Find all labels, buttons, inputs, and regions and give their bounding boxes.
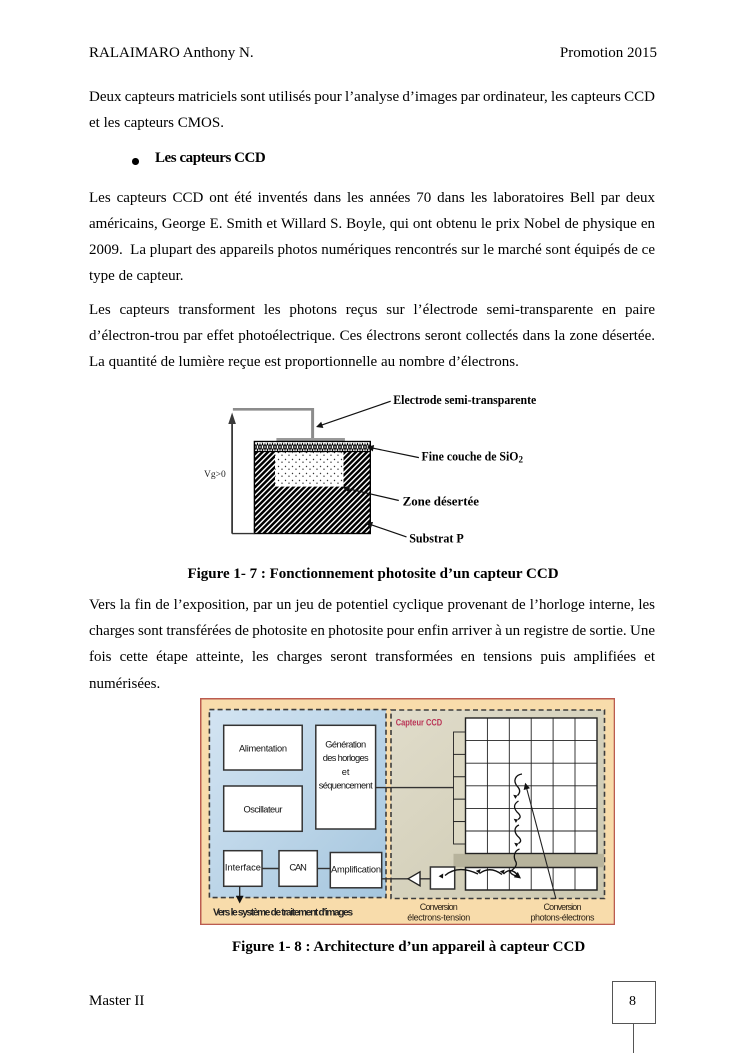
svg-text:Conversion: Conversion: [543, 902, 581, 912]
svg-text:des horloges: des horloges: [322, 753, 368, 763]
svg-text:Vg>0: Vg>0: [204, 470, 226, 480]
svg-text:Alimentation: Alimentation: [239, 743, 287, 753]
svg-text:Génération: Génération: [325, 739, 366, 749]
svg-text:Conversion: Conversion: [419, 902, 457, 912]
svg-text:Amplification: Amplification: [331, 864, 381, 874]
svg-text:CAN: CAN: [289, 862, 307, 872]
svg-text:photons-électrons: photons-électrons: [530, 912, 595, 922]
svg-text:Capteur CCD: Capteur CCD: [395, 717, 442, 728]
svg-text:Interface: Interface: [224, 862, 260, 872]
svg-text:électrons-tension: électrons-tension: [407, 912, 470, 922]
svg-text:Substrat P: Substrat P: [409, 531, 464, 545]
svg-text:séquencement: séquencement: [318, 780, 372, 790]
svg-text:et: et: [341, 767, 349, 777]
svg-text:Zone désertée: Zone désertée: [403, 495, 480, 509]
svg-text:Fine couche de SiO2: Fine couche de SiO2: [422, 449, 524, 464]
svg-text:Vers le système de traitement: Vers le système de traitement d’images: [213, 907, 353, 918]
svg-text:Oscillateur: Oscillateur: [243, 804, 282, 814]
svg-text:Electrode semi-transparente: Electrode semi-transparente: [393, 393, 536, 407]
